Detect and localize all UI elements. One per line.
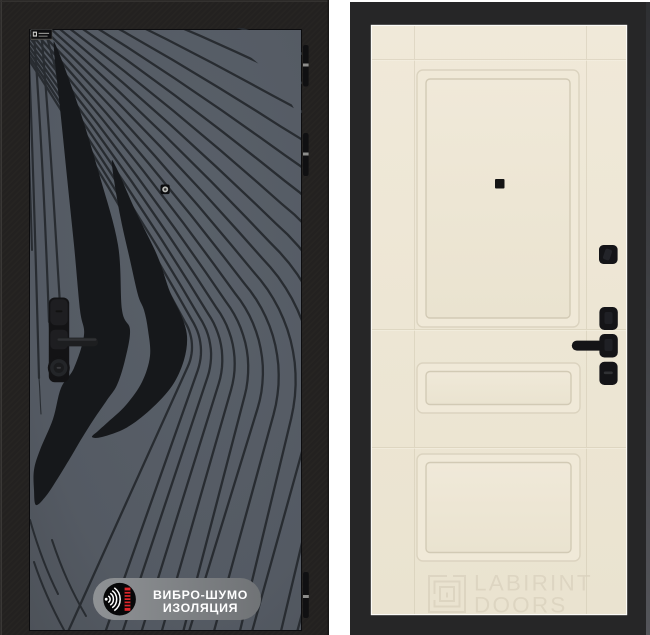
svg-text:ВИБРО-ШУМО: ВИБРО-ШУМО (153, 588, 248, 602)
svg-text:DOORS: DOORS (474, 593, 568, 618)
svg-text:ИЗОЛЯЦИЯ: ИЗОЛЯЦИЯ (163, 601, 238, 615)
